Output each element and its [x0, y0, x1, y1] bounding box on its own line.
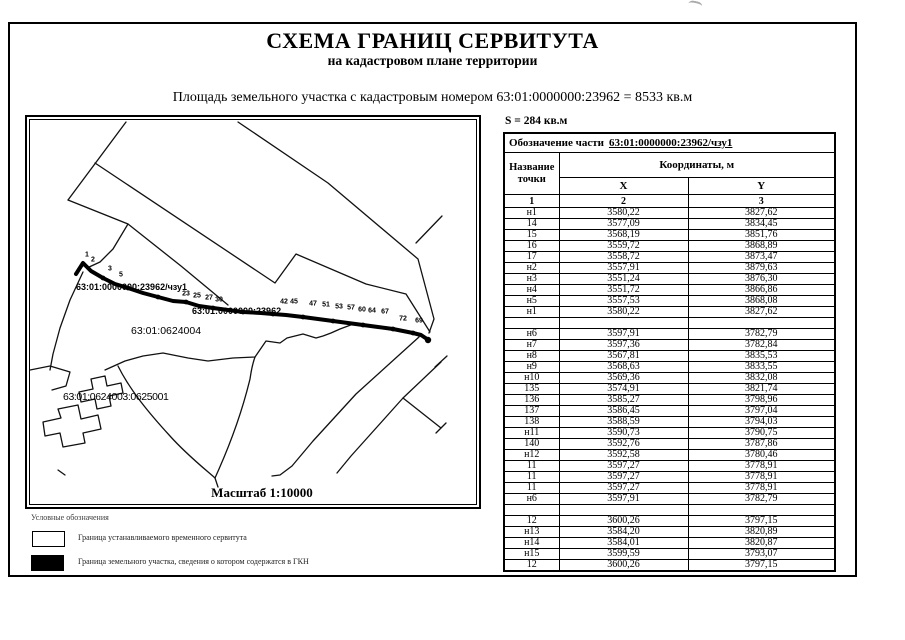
table-cell: 3584,20 [559, 527, 688, 538]
stream-curve-left [118, 366, 218, 487]
table-row: 163559,723868,89 [504, 241, 835, 252]
legend-title: Условные обозначения [31, 513, 109, 522]
table-cell: н13 [504, 527, 559, 538]
table-cell: 12 [504, 560, 559, 572]
cadastral-quarter-label-1: 63:01:0624004 [131, 325, 201, 337]
map-point-label: 27 [205, 295, 213, 302]
table-cell: 3833,55 [688, 362, 835, 373]
table-cell: 137 [504, 406, 559, 417]
map-point-label: 42 [280, 299, 288, 306]
table-row: н103569,363832,08 [504, 373, 835, 384]
part-header-value: 63:01:0000000:23962/чзу1 [609, 137, 732, 149]
table-cell: 3835,53 [688, 351, 835, 362]
table-cell: 16 [504, 241, 559, 252]
cadastral-map-drawing [30, 120, 480, 508]
table-cell: 3834,45 [688, 219, 835, 230]
map-point-label: 25 [193, 293, 201, 300]
road-band-bottom-line [68, 200, 228, 305]
table-cell: 3600,26 [559, 516, 688, 527]
table-cell: 3797,15 [688, 560, 835, 572]
column-number-3: 3 [688, 195, 835, 208]
table-row: 153568,193851,76 [504, 230, 835, 241]
map-point-label: 1 [85, 252, 89, 259]
table-cell: 140 [504, 439, 559, 450]
table-cell: 12 [504, 516, 559, 527]
table-cell: 3787,86 [688, 439, 835, 450]
table-row: 1353574,913821,74 [504, 384, 835, 395]
table-cell: 3782,79 [688, 494, 835, 505]
table-cell [688, 318, 835, 329]
table-cell: 138 [504, 417, 559, 428]
table-cell: 135 [504, 384, 559, 395]
map-point-label: 47 [309, 301, 317, 308]
table-cell: 3600,26 [559, 560, 688, 572]
map-point-label: 51 [322, 302, 330, 309]
table-header-row: Название точки Координаты, м [504, 153, 835, 178]
table-cell [559, 318, 688, 329]
table-cell: 3592,76 [559, 439, 688, 450]
table-cell: 3585,27 [559, 395, 688, 406]
table-cell: н2 [504, 263, 559, 274]
table-row: 1383588,593794,03 [504, 417, 835, 428]
table-row: 1363585,273798,96 [504, 395, 835, 406]
table-row: н53557,533868,08 [504, 296, 835, 307]
table-cell: 3794,03 [688, 417, 835, 428]
table-cell: н1 [504, 307, 559, 318]
stream-curve-right [215, 357, 255, 478]
left-boundary-line [50, 272, 83, 370]
table-cell: 3599,59 [559, 549, 688, 560]
table-cell: 3580,22 [559, 208, 688, 219]
column-number-1: 1 [504, 195, 559, 208]
area-statement: Площадь земельного участка с кадастровым… [8, 90, 857, 106]
table-cell: 3597,27 [559, 461, 688, 472]
table-part-header-row: Обозначение части63:01:0000000:23962/чзу… [504, 133, 835, 153]
map-point-label: 3 [108, 266, 112, 273]
table-cell: 3820,87 [688, 538, 835, 549]
table-row: н23557,913879,63 [504, 263, 835, 274]
column-header-coordinates: Координаты, м [559, 153, 835, 178]
table-cell: н7 [504, 340, 559, 351]
legend-swatch-servitude [32, 531, 65, 547]
map-point-label: 2 [91, 257, 95, 264]
table-cell: 3568,19 [559, 230, 688, 241]
table-row: 1373586,453797,04 [504, 406, 835, 417]
table-cell: 3588,59 [559, 417, 688, 428]
small-mark [58, 470, 65, 475]
document-title: СХЕМА ГРАНИЦ СЕРВИТУТА [8, 28, 857, 54]
table-row: н93568,633833,55 [504, 362, 835, 373]
table-row: 143577,093834,45 [504, 219, 835, 230]
table-separator-row [504, 505, 835, 516]
table-cell: 11 [504, 461, 559, 472]
table-row: н83567,813835,53 [504, 351, 835, 362]
se-band-left-line [272, 337, 419, 476]
table-body: н13580,223827,62143577,093834,45153568,1… [504, 208, 835, 572]
table-cell: н3 [504, 274, 559, 285]
table-cell: 3597,27 [559, 472, 688, 483]
table-cell: 3567,81 [559, 351, 688, 362]
table-cell: 3790,75 [688, 428, 835, 439]
table-cell: н10 [504, 373, 559, 384]
road-band-end-tick [68, 122, 126, 200]
table-cell: 3873,47 [688, 252, 835, 263]
column-number-2: 2 [559, 195, 688, 208]
table-cell: 3597,27 [559, 483, 688, 494]
legend-label-gkn-parcel: Граница земельного участка, сведения о к… [78, 557, 309, 566]
table-row: н13580,223827,62 [504, 208, 835, 219]
table-cell: 3782,79 [688, 329, 835, 340]
map-scale-label: Масштаб 1:10000 [36, 485, 488, 501]
table-row: н33551,243876,30 [504, 274, 835, 285]
table-cell: 11 [504, 483, 559, 494]
table-row: 1403592,763787,86 [504, 439, 835, 450]
table-cell: 3577,09 [559, 219, 688, 230]
table-cell: 11 [504, 472, 559, 483]
table-cell: 3568,63 [559, 362, 688, 373]
table-cell: 3782,84 [688, 340, 835, 351]
table-cell: 3586,45 [559, 406, 688, 417]
table-cell [504, 505, 559, 516]
table-cell: 3866,86 [688, 285, 835, 296]
map-point-label: 67 [381, 309, 389, 316]
document-page: СХЕМА ГРАНИЦ СЕРВИТУТА на кадастровом пл… [0, 0, 905, 640]
part-header-prefix: Обозначение части [509, 137, 604, 149]
table-cell: 3793,07 [688, 549, 835, 560]
table-row: н153599,593793,07 [504, 549, 835, 560]
table-cell: 3559,72 [559, 241, 688, 252]
table-cell: 3797,15 [688, 516, 835, 527]
map-point-label: 45 [290, 299, 298, 306]
table-cell: н14 [504, 538, 559, 549]
se-band-right-tick [435, 356, 447, 367]
table-cell: 3820,89 [688, 527, 835, 538]
table-row: н73597,363782,84 [504, 340, 835, 351]
table-row: 123600,263797,15 [504, 516, 835, 527]
table-row: н123592,583780,46 [504, 450, 835, 461]
table-row: 113597,273778,91 [504, 461, 835, 472]
servitude-boundary-thick-line [76, 262, 431, 344]
table-cell: 3778,91 [688, 461, 835, 472]
table-cell: 3590,73 [559, 428, 688, 439]
map-point-label: 30 [215, 297, 223, 304]
map-panel: 63:01:0000000:23962/чзу1 63:01:0000000:2… [25, 115, 481, 509]
table-cell: 3851,76 [688, 230, 835, 241]
column-header-y: Y [688, 178, 835, 195]
table-cell: 3597,91 [559, 494, 688, 505]
document-subtitle: на кадастровом плане территории [8, 53, 857, 69]
table-row: 123600,263797,15 [504, 560, 835, 572]
table-cell: н6 [504, 494, 559, 505]
table-cell: 3557,53 [559, 296, 688, 307]
table-row: н143584,013820,87 [504, 538, 835, 549]
table-cell: н11 [504, 428, 559, 439]
cadastral-quarter-label-2: 63:01:0624003:0625001 [63, 391, 168, 403]
ne-diagonal-tick [416, 216, 442, 243]
table-cell: 3597,36 [559, 340, 688, 351]
table-cell: н1 [504, 208, 559, 219]
table-separator-row [504, 318, 835, 329]
table-cell: 3557,91 [559, 263, 688, 274]
table-row: н43551,723866,86 [504, 285, 835, 296]
table-cell: 136 [504, 395, 559, 406]
table-cell: 3879,63 [688, 263, 835, 274]
column-header-point-name: Название точки [504, 153, 559, 195]
parcel-stair-2 [43, 405, 101, 447]
table-row: 113597,273778,91 [504, 483, 835, 494]
table-cell: 3551,24 [559, 274, 688, 285]
table-cell: 14 [504, 219, 559, 230]
table-cell: н12 [504, 450, 559, 461]
table-cell: 3778,91 [688, 483, 835, 494]
table-cell: 17 [504, 252, 559, 263]
table-cell: 3574,91 [559, 384, 688, 395]
table-cell: 3832,08 [688, 373, 835, 384]
ne-diagonal-line [238, 122, 434, 333]
map-point-label: 72 [399, 316, 407, 323]
coordinates-table: Обозначение части63:01:0000000:23962/чзу… [503, 132, 836, 572]
table-cell: 3780,46 [688, 450, 835, 461]
column-header-x: X [559, 178, 688, 195]
table-cell: н8 [504, 351, 559, 362]
table-cell: 3569,36 [559, 373, 688, 384]
map-point-label: 5 [119, 272, 123, 279]
map-point-label: 57 [347, 305, 355, 312]
table-cell: 3821,74 [688, 384, 835, 395]
road-band-top-line [95, 163, 430, 332]
table-cell: 3778,91 [688, 472, 835, 483]
map-point-label: 64 [368, 308, 376, 315]
table-cell: 3868,89 [688, 241, 835, 252]
table-cell: н4 [504, 285, 559, 296]
table-cell [504, 318, 559, 329]
table-row: н113590,733790,75 [504, 428, 835, 439]
table-cell: 3597,91 [559, 329, 688, 340]
table-row: н133584,203820,89 [504, 527, 835, 538]
table-cell: 3827,62 [688, 208, 835, 219]
legend-label-servitude: Граница устанавливаемого временного серв… [78, 533, 247, 542]
table-cell: 3827,62 [688, 307, 835, 318]
table-cell: н15 [504, 549, 559, 560]
se-band-branch [403, 398, 441, 428]
legend-swatch-gkn-parcel [31, 555, 64, 571]
map-point-label: 69 [415, 318, 423, 325]
table-cell: 3797,04 [688, 406, 835, 417]
table-row: н63597,913782,79 [504, 329, 835, 340]
map-point-label: 23 [182, 291, 190, 298]
table-cell: 3580,22 [559, 307, 688, 318]
table-row: 113597,273778,91 [504, 472, 835, 483]
se-band-right-line [337, 362, 441, 473]
map-point-label: 53 [335, 304, 343, 311]
table-cell [559, 505, 688, 516]
table-row: н63597,913782,79 [504, 494, 835, 505]
map-point-label: 60 [358, 307, 366, 314]
table-cell: 3798,96 [688, 395, 835, 406]
table-cell: н9 [504, 362, 559, 373]
table-cell: 15 [504, 230, 559, 241]
part-area-label: S = 284 кв.м [505, 115, 567, 127]
table-cell [688, 505, 835, 516]
table-cell: 3558,72 [559, 252, 688, 263]
table-row: н13580,223827,62 [504, 307, 835, 318]
table-cell: н5 [504, 296, 559, 307]
table-cell: 3584,01 [559, 538, 688, 549]
table-row: 173558,723873,47 [504, 252, 835, 263]
scan-artifact [687, 0, 703, 12]
table-cell: 3551,72 [559, 285, 688, 296]
table-cell: 3868,08 [688, 296, 835, 307]
table-cell: 3592,58 [559, 450, 688, 461]
table-column-numbers-row: 1 2 3 [504, 195, 835, 208]
table-cell: 3876,30 [688, 274, 835, 285]
table-cell: н6 [504, 329, 559, 340]
